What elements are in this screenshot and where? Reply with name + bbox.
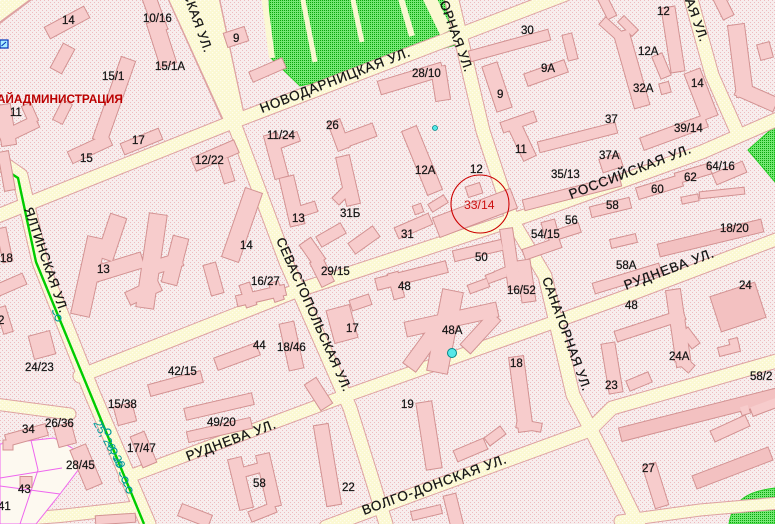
svg-text:14: 14: [691, 78, 704, 90]
svg-text:13: 13: [97, 264, 110, 276]
svg-text:58: 58: [606, 200, 619, 212]
svg-text:29/15: 29/15: [321, 266, 350, 278]
svg-text:18/46: 18/46: [277, 342, 306, 354]
svg-text:56: 56: [565, 215, 578, 227]
svg-text:24/23: 24/23: [25, 362, 54, 374]
svg-text:12: 12: [657, 6, 670, 18]
svg-text:15/1: 15/1: [102, 71, 124, 83]
svg-text:37А: 37А: [599, 150, 620, 162]
svg-text:19: 19: [401, 399, 414, 411]
svg-text:17: 17: [132, 135, 145, 147]
svg-text:35/13: 35/13: [551, 169, 580, 181]
svg-text:11/24: 11/24: [267, 130, 296, 142]
svg-text:42/15: 42/15: [168, 366, 197, 378]
svg-text:15/38: 15/38: [108, 399, 137, 411]
svg-text:31Б: 31Б: [340, 208, 360, 220]
svg-text:2: 2: [0, 315, 4, 327]
svg-text:15/1А: 15/1А: [155, 61, 185, 73]
svg-text:11: 11: [10, 107, 22, 119]
svg-text:17/47: 17/47: [127, 443, 156, 455]
svg-text:10/16: 10/16: [143, 13, 172, 25]
svg-text:РАЙАДМИНИСТРАЦИЯ: РАЙАДМИНИСТРАЦИЯ: [0, 92, 123, 106]
svg-text:48: 48: [398, 281, 411, 293]
svg-text:12: 12: [470, 164, 483, 176]
svg-text:17: 17: [346, 323, 359, 335]
svg-text:12А: 12А: [415, 165, 436, 177]
svg-text:27: 27: [642, 463, 655, 475]
svg-text:50: 50: [475, 252, 488, 264]
svg-text:18/20: 18/20: [720, 223, 749, 235]
svg-text:60: 60: [651, 184, 664, 196]
svg-text:58А: 58А: [616, 260, 637, 272]
svg-text:34: 34: [22, 424, 35, 436]
svg-text:62: 62: [684, 172, 697, 184]
svg-text:12/22: 12/22: [195, 155, 224, 167]
svg-text:33/14: 33/14: [464, 198, 495, 212]
svg-text:31: 31: [401, 229, 414, 241]
svg-text:28/10: 28/10: [412, 68, 441, 80]
svg-text:48А: 48А: [442, 325, 463, 337]
svg-text:16/52: 16/52: [507, 285, 536, 297]
svg-text:41: 41: [0, 501, 11, 513]
svg-text:43: 43: [18, 484, 31, 496]
svg-text:15: 15: [80, 153, 93, 165]
svg-text:26/36: 26/36: [45, 418, 74, 430]
svg-text:24А: 24А: [669, 351, 690, 363]
svg-text:9: 9: [233, 33, 239, 45]
svg-text:16/27: 16/27: [251, 276, 280, 288]
svg-text:58/2: 58/2: [750, 371, 772, 383]
svg-text:9: 9: [497, 89, 503, 101]
svg-text:54/15: 54/15: [531, 229, 560, 241]
svg-text:14: 14: [240, 240, 253, 252]
svg-text:23: 23: [605, 380, 618, 392]
svg-text:44: 44: [253, 340, 266, 352]
svg-text:64/16: 64/16: [706, 161, 735, 173]
svg-text:49/20: 49/20: [207, 417, 236, 429]
svg-text:58: 58: [253, 478, 266, 490]
svg-text:11: 11: [515, 144, 527, 156]
svg-text:14: 14: [62, 15, 75, 27]
svg-text:18: 18: [510, 358, 523, 370]
svg-text:32А: 32А: [633, 83, 654, 95]
svg-text:18: 18: [0, 253, 13, 265]
svg-text:12А: 12А: [638, 46, 659, 58]
svg-text:39/14: 39/14: [674, 123, 703, 135]
svg-text:22: 22: [342, 482, 355, 494]
svg-text:48: 48: [625, 300, 638, 312]
svg-text:28/45: 28/45: [66, 460, 95, 472]
svg-text:9А: 9А: [541, 63, 555, 75]
svg-text:37: 37: [605, 114, 618, 126]
svg-text:24: 24: [739, 280, 752, 292]
svg-text:26: 26: [326, 120, 339, 132]
svg-text:30: 30: [521, 25, 534, 37]
svg-text:13: 13: [292, 213, 305, 225]
